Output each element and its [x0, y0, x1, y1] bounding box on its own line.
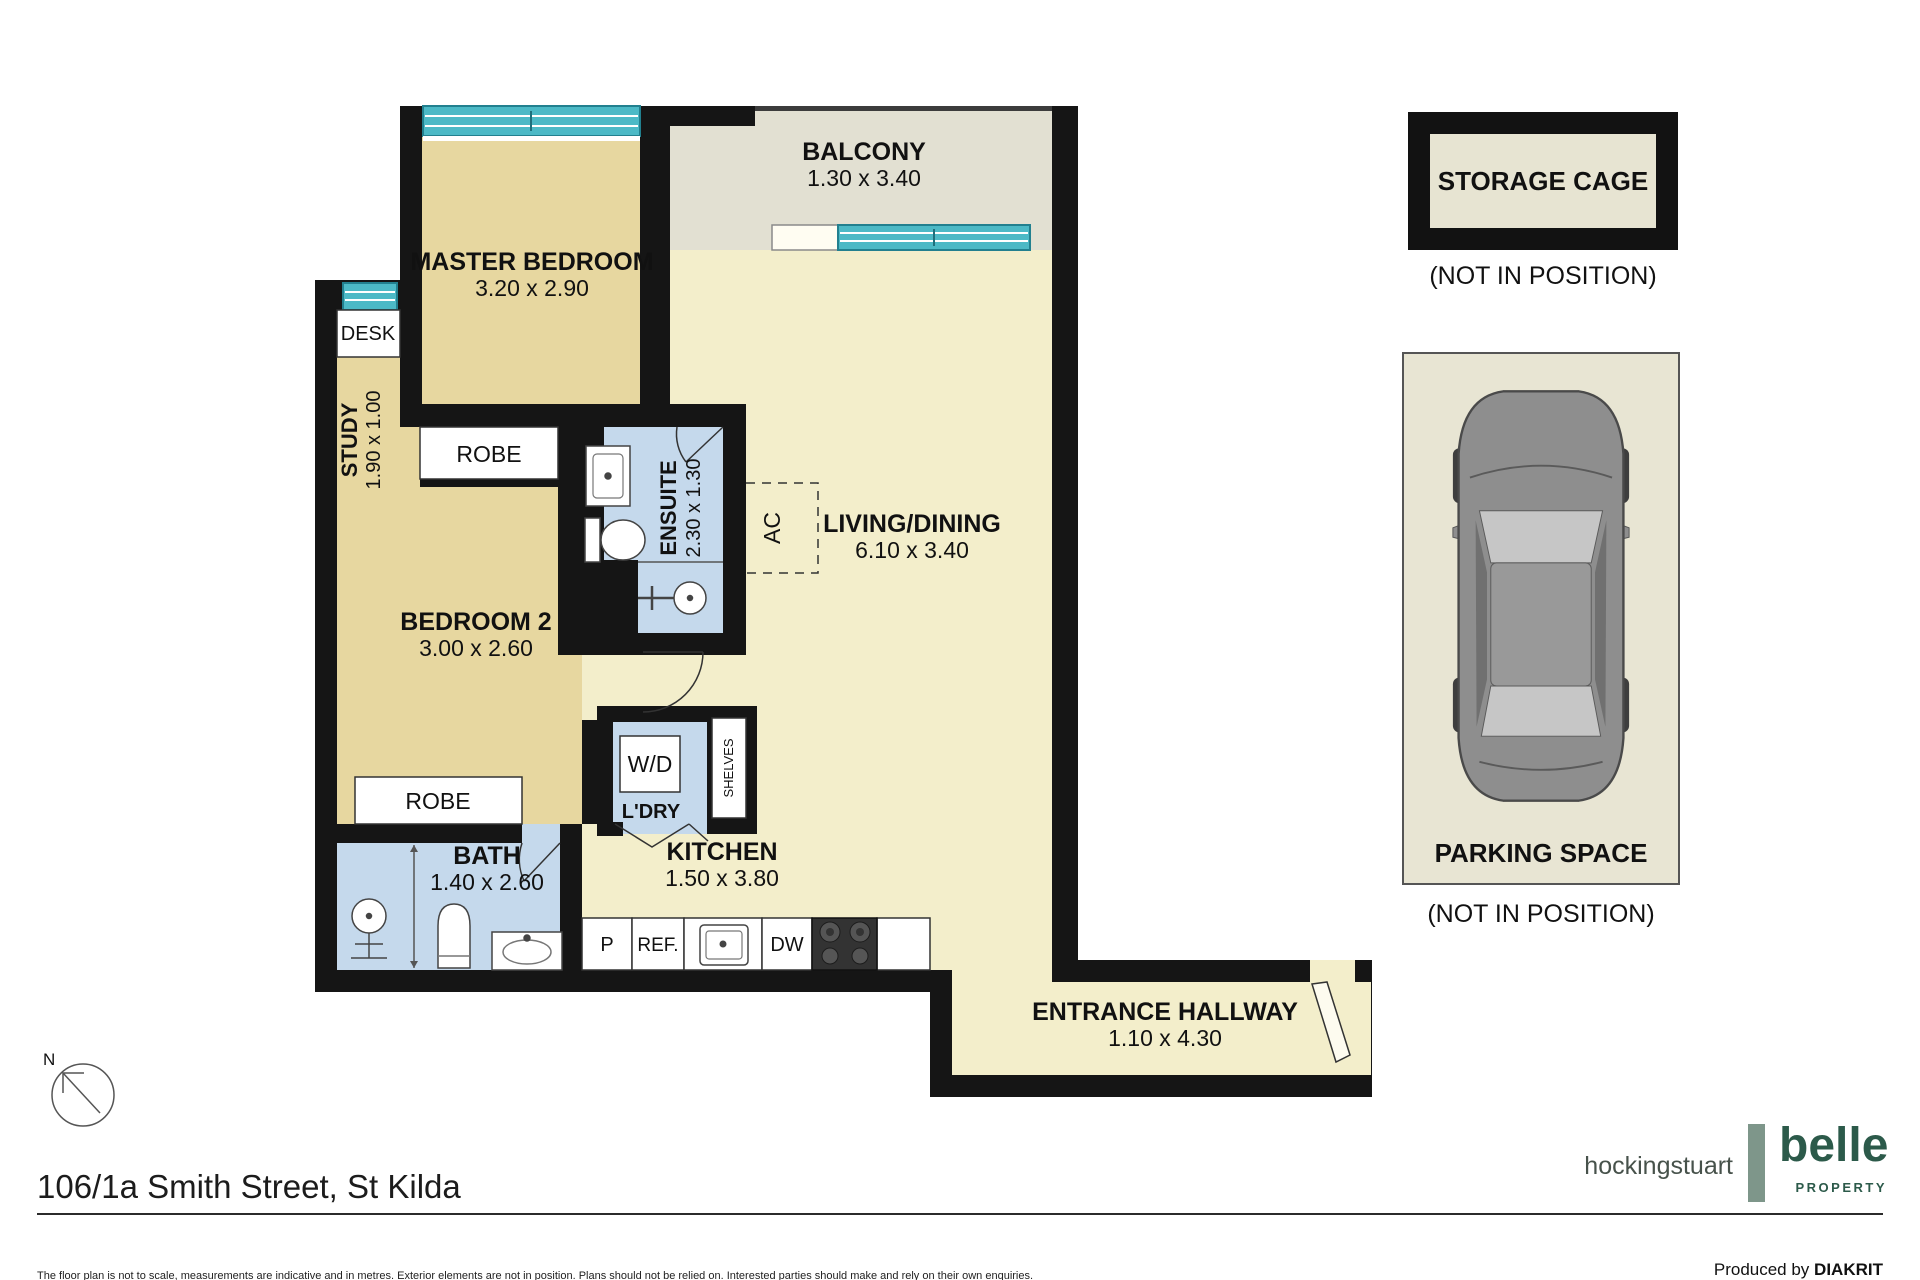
label-robe-master: ROBE — [456, 441, 521, 467]
balcony-door-opening — [772, 225, 838, 250]
dims-bath: 1.40 x 2.60 — [430, 869, 544, 895]
label-dishwasher: DW — [770, 934, 803, 956]
kitchen-sink — [700, 925, 748, 965]
north-compass: N — [30, 1045, 130, 1145]
car-icon — [1451, 376, 1631, 816]
dims-living-dining: 6.10 x 3.40 — [855, 537, 969, 563]
produced-by-prefix: Produced by — [1714, 1260, 1809, 1279]
property-address: 106/1a Smith Street, St Kilda — [37, 1168, 461, 1206]
label-fridge: REF. — [637, 935, 678, 956]
dims-bedroom2: 3.00 x 2.60 — [419, 635, 533, 661]
bath-toilet — [438, 904, 470, 968]
floor-plan: MASTER BEDROOM 3.20 x 2.90 BALCONY 1.30 … — [252, 80, 1372, 1120]
window-sill — [423, 136, 640, 141]
dims-balcony: 1.30 x 3.40 — [807, 165, 921, 191]
hockingstuart-logo: hockingstuart — [1540, 1152, 1733, 1181]
produced-by: Produced by DIAKRIT — [1714, 1260, 1883, 1280]
dims-entrance-hallway: 1.10 x 4.30 — [1108, 1025, 1222, 1051]
storage-cage-label: STORAGE CAGE — [1438, 166, 1648, 197]
label-study: STUDY — [337, 402, 362, 477]
room-bedroom2-study — [337, 283, 582, 843]
compass-needle — [63, 1073, 100, 1113]
label-kitchen: KITCHEN — [666, 838, 777, 866]
label-desk: DESK — [341, 323, 396, 345]
counter — [877, 918, 930, 970]
label-entrance-hallway: ENTRANCE HALLWAY — [1032, 998, 1298, 1026]
label-balcony: BALCONY — [802, 138, 926, 166]
label-ac: AC — [759, 512, 785, 544]
storage-cage-box: STORAGE CAGE — [1408, 112, 1678, 250]
label-robe-bedroom2: ROBE — [405, 788, 470, 814]
label-bath: BATH — [453, 842, 521, 870]
dims-study: 1.90 x 1.00 — [363, 391, 385, 490]
parking-space-note: (NOT IN POSITION) — [1402, 900, 1680, 929]
label-pantry: P — [600, 934, 613, 956]
label-ensuite: ENSUITE — [656, 460, 681, 555]
parking-space-label: PARKING SPACE — [1404, 838, 1678, 869]
dims-master-bedroom: 3.20 x 2.90 — [475, 275, 589, 301]
storage-cage-note: (NOT IN POSITION) — [1408, 262, 1678, 291]
belle-property-sub: PROPERTY — [1779, 1180, 1887, 1195]
dims-ensuite: 2.30 x 1.30 — [683, 459, 705, 558]
parking-space-box: PARKING SPACE — [1402, 352, 1680, 885]
label-bedroom2: BEDROOM 2 — [400, 608, 551, 636]
label-wd: W/D — [628, 751, 673, 777]
label-ldry: L'DRY — [622, 801, 681, 823]
label-shelves: SHELVES — [721, 738, 736, 797]
label-living-dining: LIVING/DINING — [823, 510, 1001, 538]
label-master-bedroom: MASTER BEDROOM — [410, 248, 653, 276]
footer-divider — [37, 1213, 1883, 1215]
belle-logo: belle — [1779, 1120, 1888, 1173]
disclaimer-text: The floor plan is not to scale, measurem… — [37, 1270, 1033, 1280]
ensuite-toilet-tank — [585, 518, 600, 562]
stove — [812, 918, 877, 970]
floorplan-page: MASTER BEDROOM 3.20 x 2.90 BALCONY 1.30 … — [0, 0, 1920, 1280]
dims-kitchen: 1.50 x 3.80 — [665, 865, 779, 891]
ensuite-toilet — [601, 520, 645, 560]
brand-divider-bar — [1748, 1124, 1765, 1202]
compass-n-label: N — [43, 1050, 55, 1069]
producer-name: DIAKRIT — [1814, 1260, 1883, 1279]
